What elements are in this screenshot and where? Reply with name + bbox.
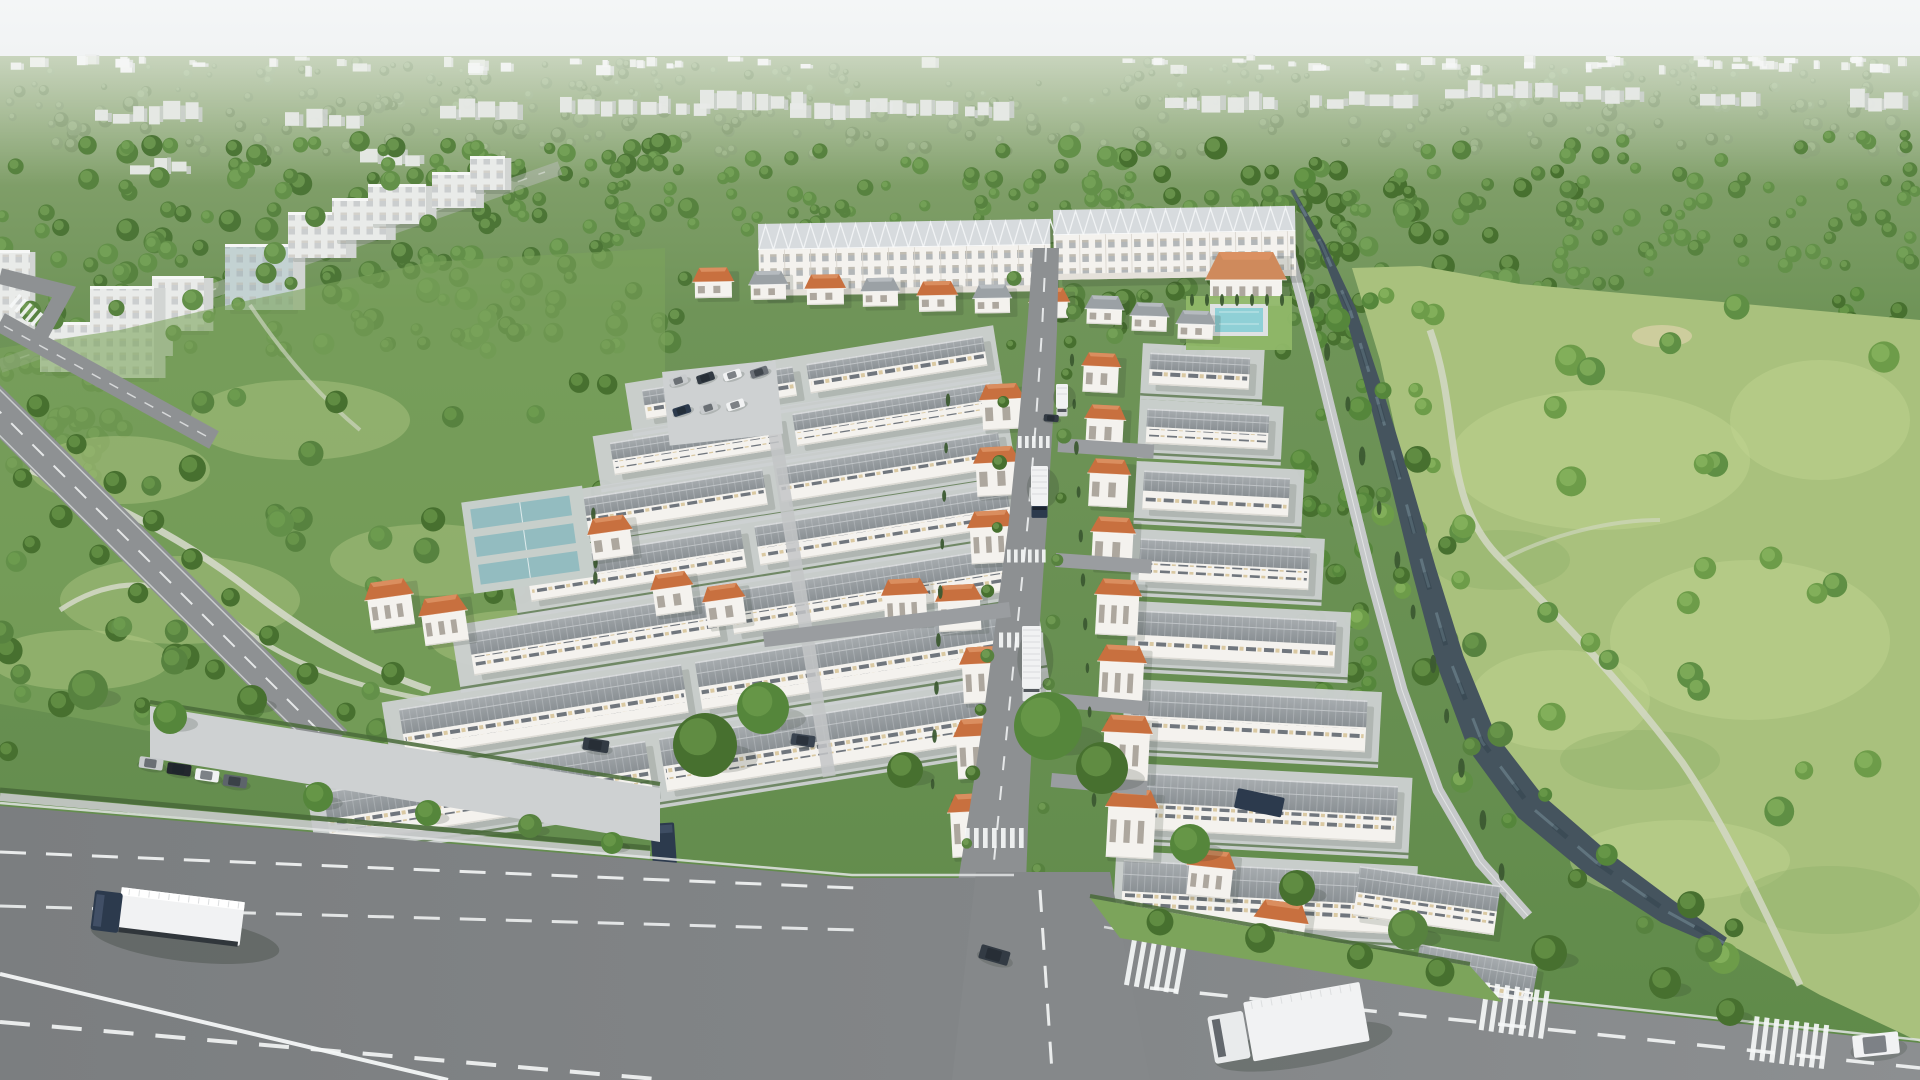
aerial-render-stage: Aerial masterplan rendering	[0, 0, 1920, 1080]
scene-svg: Aerial masterplan rendering	[0, 0, 1920, 1080]
